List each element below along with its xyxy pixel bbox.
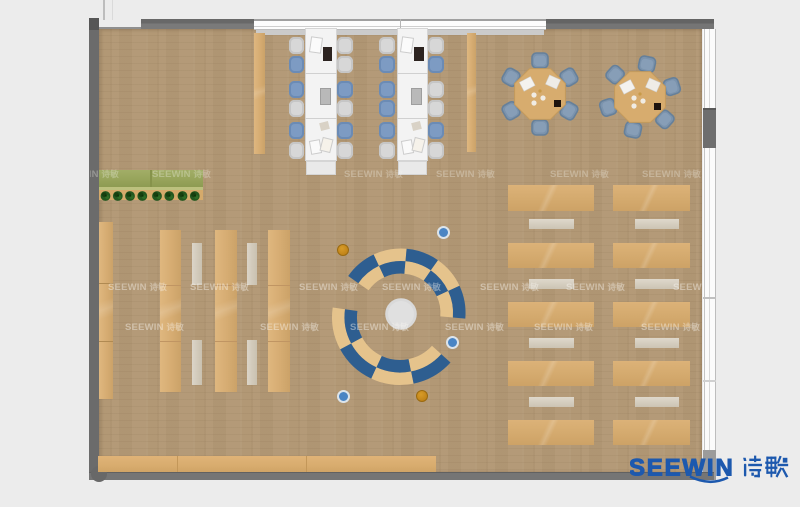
svg-text:SEEWIN: SEEWIN bbox=[630, 455, 734, 482]
